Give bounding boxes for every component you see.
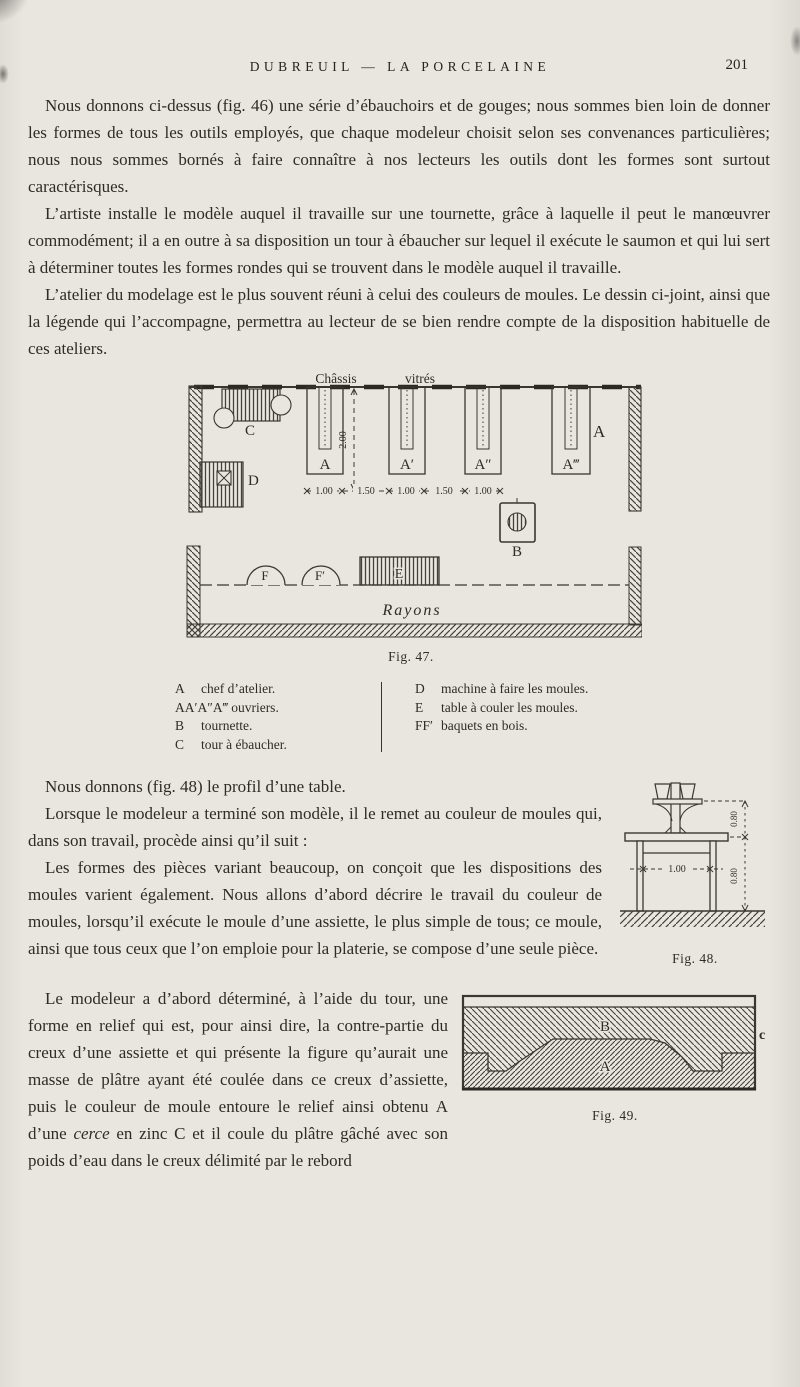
- fig48-width-label: 1.00: [668, 864, 686, 875]
- tournette-b: B: [500, 498, 535, 560]
- legend-desc: tour à ébaucher.: [201, 737, 287, 752]
- legend-right-column: Dmachine à faire les moules. Etable à co…: [382, 680, 588, 754]
- legend-key: C: [175, 736, 198, 755]
- legend-desc: machine à faire les moules.: [441, 681, 588, 696]
- legend-row: FF′baquets en bois.: [415, 717, 588, 736]
- paragraph-7-start: Le modeleur a d’abord déterminé, à l’aid…: [28, 989, 448, 1143]
- paragraph-1: Nous donnons ci-dessus (fig. 46) une sér…: [28, 92, 770, 200]
- legend-desc: ouvriers.: [231, 700, 279, 715]
- left-wall-bottom: [187, 546, 200, 637]
- drying-rack: [653, 783, 702, 833]
- table-profile-drawing: 1.00 0.80 0.80: [620, 777, 770, 939]
- label-b: B: [512, 544, 522, 560]
- right-wall-top: [629, 387, 641, 511]
- running-title: DUBREUIL — LA PORCELAINE: [0, 59, 800, 75]
- fig49-label-b: B: [600, 1019, 610, 1035]
- table-label-a: A: [320, 457, 331, 473]
- legend-key: E: [415, 699, 438, 718]
- dim-label-3: 1.00: [397, 486, 415, 497]
- label-f: F: [261, 568, 268, 583]
- legend-row: AA′A″A‴ouvriers.: [175, 699, 381, 718]
- legend-row: Achef d’atelier.: [175, 680, 381, 699]
- legend-key: B: [175, 717, 198, 736]
- paragraph-3: L’atelier du modelage est le plus souven…: [28, 281, 770, 362]
- legend-desc: table à couler les moules.: [441, 700, 578, 715]
- fig48-caption: Fig. 48.: [620, 951, 770, 967]
- fig49-label-c: c: [759, 1028, 765, 1043]
- legend-desc: baquets en bois.: [441, 718, 528, 733]
- paragraph-7-italic-word: cerce: [73, 1124, 109, 1143]
- label-right-a: A: [593, 422, 606, 441]
- table-label-a1: A′: [400, 457, 414, 473]
- dim-label-1: 1.00: [315, 486, 333, 497]
- bottom-wall: [187, 624, 642, 637]
- section-table-profile: 1.00 0.80 0.80 Fig. 48. Nous: [28, 773, 770, 985]
- label-f2: F′: [315, 568, 325, 583]
- label-d: D: [248, 473, 259, 489]
- label-c: C: [245, 423, 255, 439]
- figure-48: 1.00 0.80 0.80 Fig. 48.: [620, 777, 770, 967]
- fig49-caption: Fig. 49.: [460, 1108, 770, 1124]
- label-rayons: Rayons: [381, 602, 441, 619]
- page-number: 201: [726, 57, 749, 74]
- fig48-height-bottom-label: 0.80: [729, 868, 739, 884]
- worker-tables: [307, 387, 590, 474]
- paragraph-2: L’artiste installe le modèle auquel il t…: [28, 200, 770, 281]
- ground-hatch: [620, 911, 765, 927]
- workshop-floorplan-drawing: Châssis vitrés C D: [180, 372, 642, 644]
- legend-row: Btournette.: [175, 717, 381, 736]
- page-header: DUBREUIL — LA PORCELAINE 201: [0, 0, 800, 75]
- legend-desc: tournette.: [201, 718, 252, 733]
- legend-key: A: [175, 680, 198, 699]
- figure-legend: Achef d’atelier. AA′A″A‴ouvriers. Btourn…: [175, 680, 770, 754]
- label-e: E: [395, 567, 404, 582]
- roughing-lathe-c: C: [214, 389, 291, 439]
- dim-2m-label: 2.00: [338, 431, 349, 449]
- page-body: Nous donnons ci-dessus (fig. 46) une sér…: [0, 92, 800, 1174]
- dim-label-5: 1.00: [474, 486, 492, 497]
- fig49-label-a: A: [600, 1059, 611, 1075]
- figure-47: Châssis vitrés C D: [180, 372, 642, 665]
- right-wall-bottom: [629, 547, 641, 625]
- dimension-2m: [351, 389, 357, 490]
- legend-row: Dmachine à faire les moules.: [415, 680, 588, 699]
- figure-49: B A c Fig. 49.: [460, 991, 770, 1124]
- legend-key: FF′: [415, 717, 438, 736]
- fig47-chassis-label: Châssis: [315, 372, 356, 386]
- legend-row: Etable à couler les moules.: [415, 699, 588, 718]
- table-label-a3: A‴: [562, 457, 580, 473]
- fig47-caption: Fig. 47.: [180, 649, 642, 665]
- legend-row: Ctour à ébaucher.: [175, 736, 381, 755]
- legend-key: D: [415, 680, 438, 699]
- table-label-a2: A″: [474, 457, 491, 473]
- legend-key: AA′A″A‴: [175, 699, 228, 718]
- book-page: DUBREUIL — LA PORCELAINE 201 Nous donnon…: [0, 0, 800, 1387]
- dim-label-4: 1.50: [435, 486, 453, 497]
- section-mold: B A c Fig. 49. Le modeleur a d’abord dét…: [28, 985, 770, 1174]
- dim-label-2: 1.50: [357, 486, 375, 497]
- legend-desc: chef d’atelier.: [201, 681, 275, 696]
- fig48-height-top-label: 0.80: [729, 811, 739, 827]
- legend-left-column: Achef d’atelier. AA′A″A‴ouvriers. Btourn…: [175, 680, 381, 754]
- mold-cross-section-drawing: B A c: [460, 991, 770, 1095]
- mould-machine-d: D: [200, 462, 259, 507]
- fig47-vitres-label: vitrés: [405, 372, 435, 386]
